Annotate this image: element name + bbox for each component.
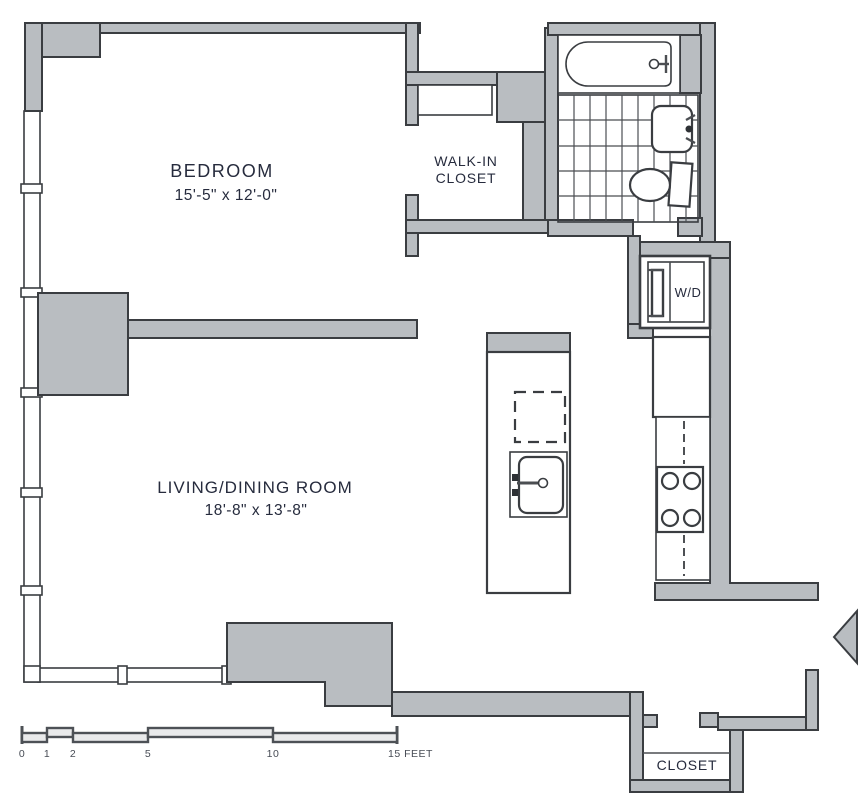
scale-label-15-feet: 15 FEET bbox=[388, 748, 433, 760]
wall-wd-niche-left bbox=[628, 236, 640, 336]
wall-wic-bath-block bbox=[497, 72, 545, 122]
living-dining-label: LIVING/DINING ROOM bbox=[157, 478, 353, 497]
scale-label-5: 5 bbox=[145, 748, 151, 760]
kitchen-sink-icon bbox=[510, 452, 567, 517]
left-window-wall bbox=[21, 111, 42, 682]
bedroom-dimensions: 15'-5" x 12'-0" bbox=[175, 187, 278, 204]
wall-wic-top bbox=[406, 72, 497, 85]
wall-closet-door-jamb-right bbox=[700, 713, 718, 727]
wall-island-cap bbox=[487, 333, 570, 352]
refrigerator-icon bbox=[653, 337, 710, 417]
wall-bottom-band bbox=[392, 692, 643, 716]
floor-plan-svg: W/D BEDROOM 15'-5" x bbox=[0, 0, 865, 800]
living-dining-dimensions: 18'-8" x 13'-8" bbox=[205, 502, 308, 519]
wall-wic-left-b bbox=[406, 195, 418, 223]
kitchen bbox=[653, 337, 710, 580]
wall-bedroom-living-divider bbox=[128, 320, 417, 338]
wall-window-column bbox=[38, 293, 128, 395]
wall-wic-bath-lower bbox=[523, 122, 545, 222]
stove-burners-icon bbox=[657, 467, 703, 532]
bathtub-icon bbox=[558, 35, 680, 93]
scale-label-1: 1 bbox=[44, 748, 50, 760]
entry-door-swing-icon bbox=[834, 611, 857, 663]
toilet-icon bbox=[630, 162, 692, 206]
kitchen-island bbox=[487, 352, 570, 593]
scale-label-2: 2 bbox=[70, 748, 76, 760]
entry-closet-label: CLOSET bbox=[657, 757, 718, 773]
walk-in-closet-label-line2: CLOSET bbox=[436, 170, 497, 186]
wall-closet-door-jamb-left bbox=[643, 715, 657, 727]
washer-dryer-label: W/D bbox=[675, 285, 702, 300]
wall-bottom-block bbox=[227, 623, 392, 706]
wall-closet-left bbox=[630, 692, 643, 792]
washer-dryer-icon: W/D bbox=[640, 256, 710, 328]
wall-bath-top bbox=[548, 23, 715, 35]
bathroom-sink-icon bbox=[652, 106, 695, 152]
wall-bath-west bbox=[545, 28, 558, 224]
wall-entry-right bbox=[806, 670, 818, 730]
floor-plan: W/D BEDROOM 15'-5" x bbox=[0, 0, 865, 800]
bathroom bbox=[558, 35, 698, 222]
wall-wic-bottom bbox=[406, 220, 552, 233]
wall-wic-left-a bbox=[406, 85, 418, 125]
wall-entry-bottom bbox=[718, 717, 818, 730]
bedroom-label: BEDROOM bbox=[170, 161, 274, 181]
scale-label-10: 10 bbox=[267, 748, 280, 760]
scale-bar: 0 1 2 5 10 15 FEET bbox=[19, 726, 433, 760]
scale-label-0: 0 bbox=[19, 748, 25, 760]
wall-closet-bottom bbox=[630, 780, 743, 792]
wall-left-upper bbox=[25, 23, 42, 111]
closet-shelf bbox=[418, 85, 492, 115]
wall-tub-east-filler bbox=[680, 35, 701, 93]
walk-in-closet-label-line1: WALK-IN bbox=[434, 153, 497, 169]
